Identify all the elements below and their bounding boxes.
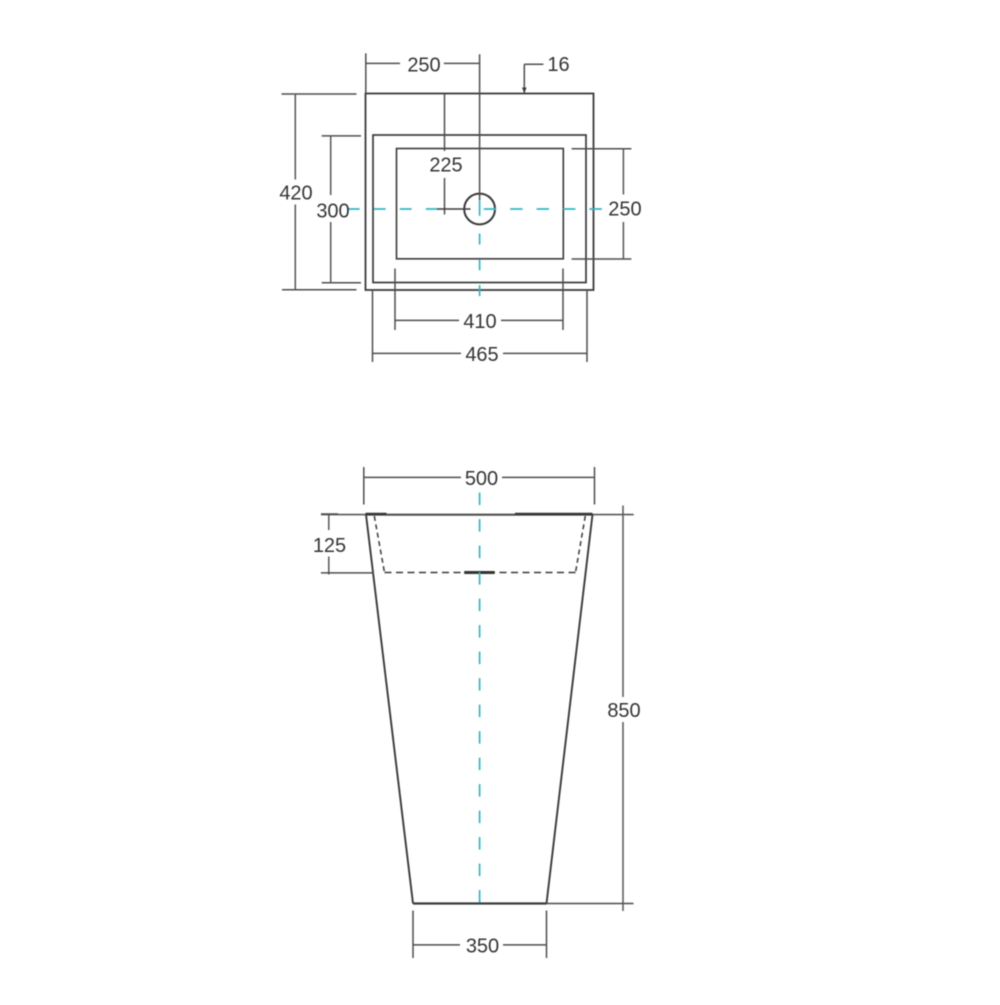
svg-text:465: 465 (465, 344, 498, 366)
svg-text:225: 225 (429, 155, 462, 177)
svg-text:420: 420 (279, 182, 312, 204)
svg-text:125: 125 (313, 535, 346, 557)
svg-text:850: 850 (607, 700, 640, 722)
svg-text:410: 410 (463, 311, 496, 333)
svg-text:300: 300 (316, 201, 349, 223)
svg-text:500: 500 (465, 468, 498, 490)
svg-text:250: 250 (407, 55, 440, 77)
svg-text:16: 16 (547, 54, 569, 76)
svg-text:350: 350 (466, 936, 499, 958)
svg-text:250: 250 (608, 199, 641, 221)
